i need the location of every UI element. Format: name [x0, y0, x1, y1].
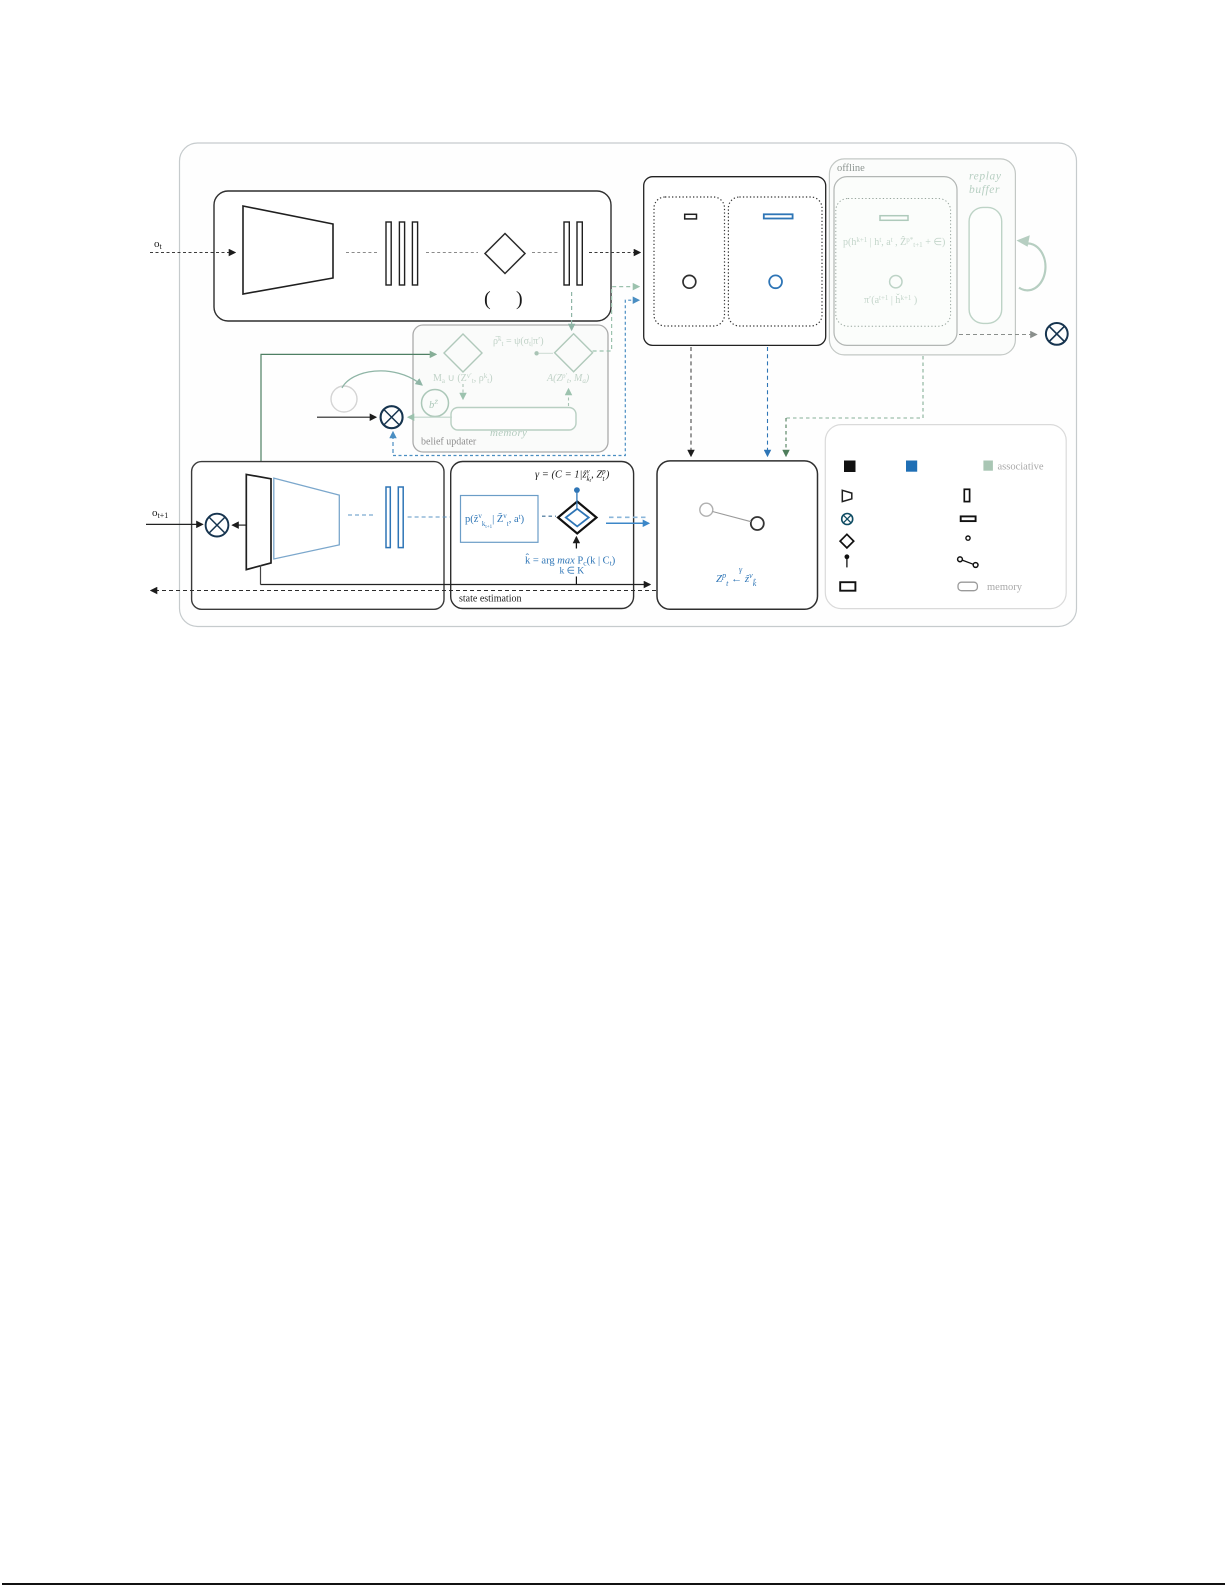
svg-text:k ∈ K: k ∈ K [560, 566, 585, 577]
svg-text:memory: memory [987, 582, 1023, 593]
svg-text:(: ( [484, 288, 491, 310]
svg-text:): ) [516, 288, 523, 310]
svg-text:belief updater: belief updater [421, 437, 477, 448]
svg-text:ot: ot [154, 238, 163, 251]
svg-text:offline: offline [837, 163, 865, 174]
svg-text:replay: replay [969, 171, 1002, 183]
svg-text:ot+1: ot+1 [152, 507, 168, 520]
svg-text:buffer: buffer [969, 184, 1000, 196]
svg-text:state estimation: state estimation [459, 594, 522, 605]
svg-text:k̂ = arg max Pc(k | Ct): k̂ = arg max Pc(k | Ct) [525, 553, 616, 567]
svg-text:memory: memory [490, 427, 527, 439]
svg-text:ρ̅kt = ψ(σt|π′): ρ̅kt = ψ(σt|π′) [493, 335, 544, 348]
svg-text:associative: associative [998, 462, 1044, 473]
